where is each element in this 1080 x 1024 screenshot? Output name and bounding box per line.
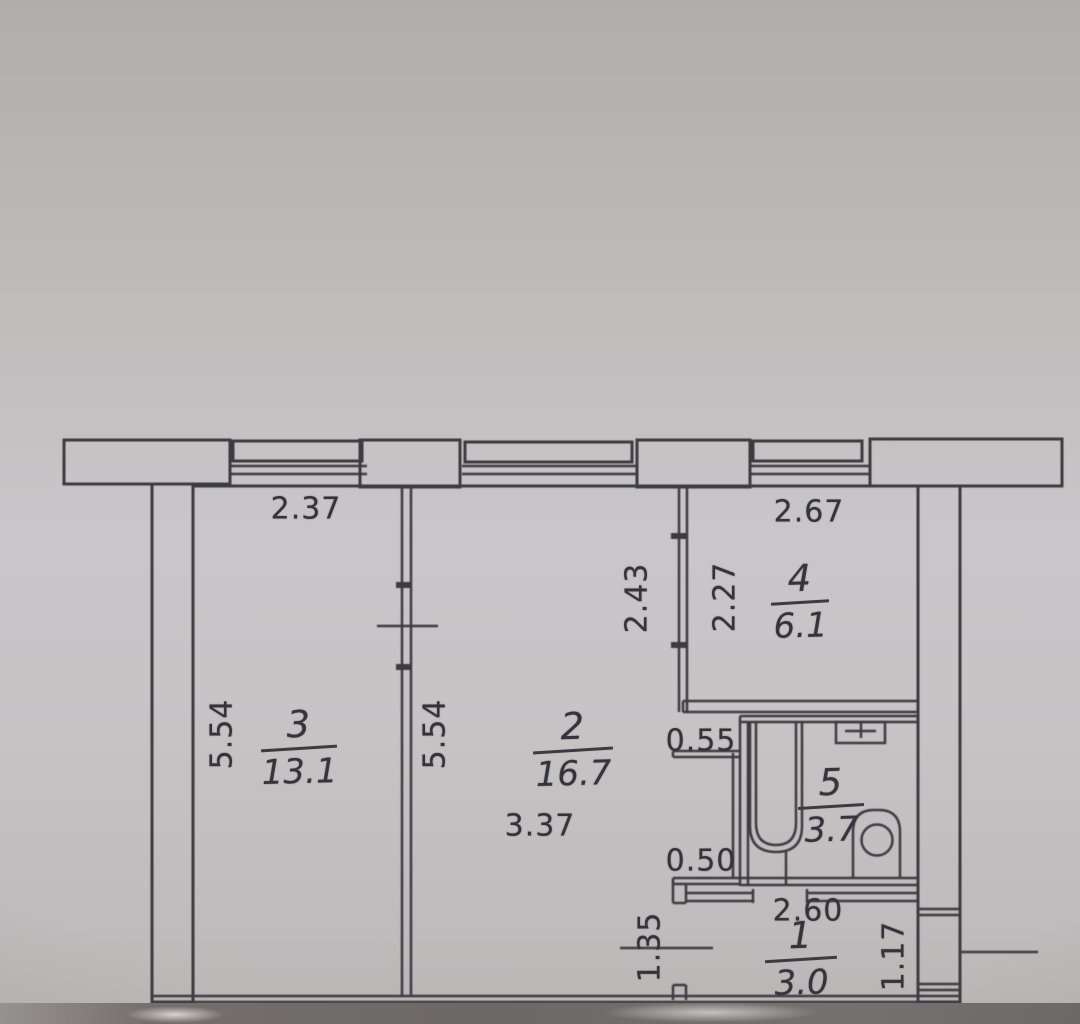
room-2-number: 2 [554, 708, 591, 750]
wall-room2-room4 [671, 486, 688, 712]
room-2-area: 16.7 [535, 751, 612, 794]
dim-5-54-left: 5.54 [205, 699, 240, 770]
outer-wall-left [152, 484, 193, 1002]
dim-2-67: 2.67 [774, 495, 845, 530]
bathtub-icon [750, 722, 802, 884]
room-4-area: 6.1 [773, 603, 828, 646]
wall-room4-bottom [683, 701, 918, 712]
dim-0-55: 0.55 [666, 724, 737, 759]
room-4-label: 4 6.1 [770, 559, 830, 646]
room-3-label: 3 13.1 [260, 705, 338, 792]
room-3-number: 3 [280, 706, 317, 748]
dim-2-37: 2.37 [271, 492, 342, 527]
room-5-area: 3.7 [804, 807, 859, 850]
photo-edge-shadow [0, 1003, 1080, 1024]
window-icon [750, 441, 870, 474]
dim-3-37: 3.37 [505, 809, 576, 844]
room-2-label: 2 16.7 [532, 707, 614, 794]
room-4-number: 4 [781, 560, 818, 602]
room-1-number: 1 [782, 917, 819, 959]
window-icon [462, 442, 637, 474]
sink-icon [836, 722, 885, 743]
outer-wall-right [918, 486, 1038, 1002]
room-5-number: 5 [812, 764, 849, 806]
outer-wall-bottom [152, 996, 960, 1002]
room-3-area: 13.1 [261, 749, 338, 792]
room-5-label: 5 3.7 [797, 763, 865, 850]
room-1-area: 3.0 [774, 960, 829, 1003]
floor-plan-drawing [0, 0, 1080, 1024]
window-icon [230, 441, 367, 474]
dim-5-54-mid: 5.54 [418, 699, 453, 770]
dim-2-43: 2.43 [620, 563, 655, 634]
dim-1-17: 1.17 [877, 921, 912, 992]
dim-1-35: 1.35 [633, 912, 668, 983]
room-1-label: 1 3.0 [764, 916, 838, 1003]
dim-0-50: 0.50 [666, 844, 737, 879]
wall-hall-stub-lower [673, 878, 740, 884]
dim-2-27: 2.27 [708, 562, 743, 633]
floor-plan-photo: 2.37 2.67 2.43 2.27 5.54 5.54 3.37 0.55 … [0, 0, 1080, 1024]
